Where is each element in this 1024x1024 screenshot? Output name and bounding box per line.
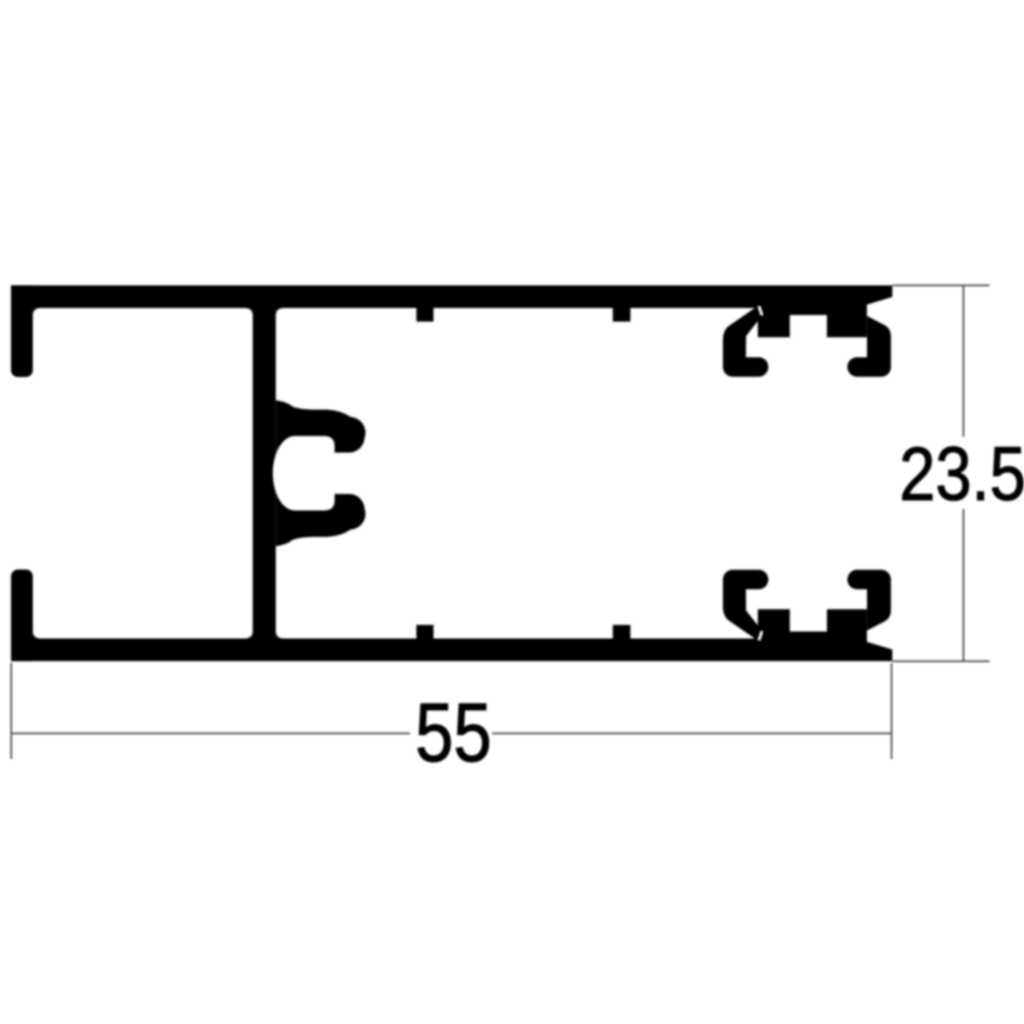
- svg-text:23.5: 23.5: [899, 431, 1024, 516]
- svg-text:55: 55: [415, 687, 492, 780]
